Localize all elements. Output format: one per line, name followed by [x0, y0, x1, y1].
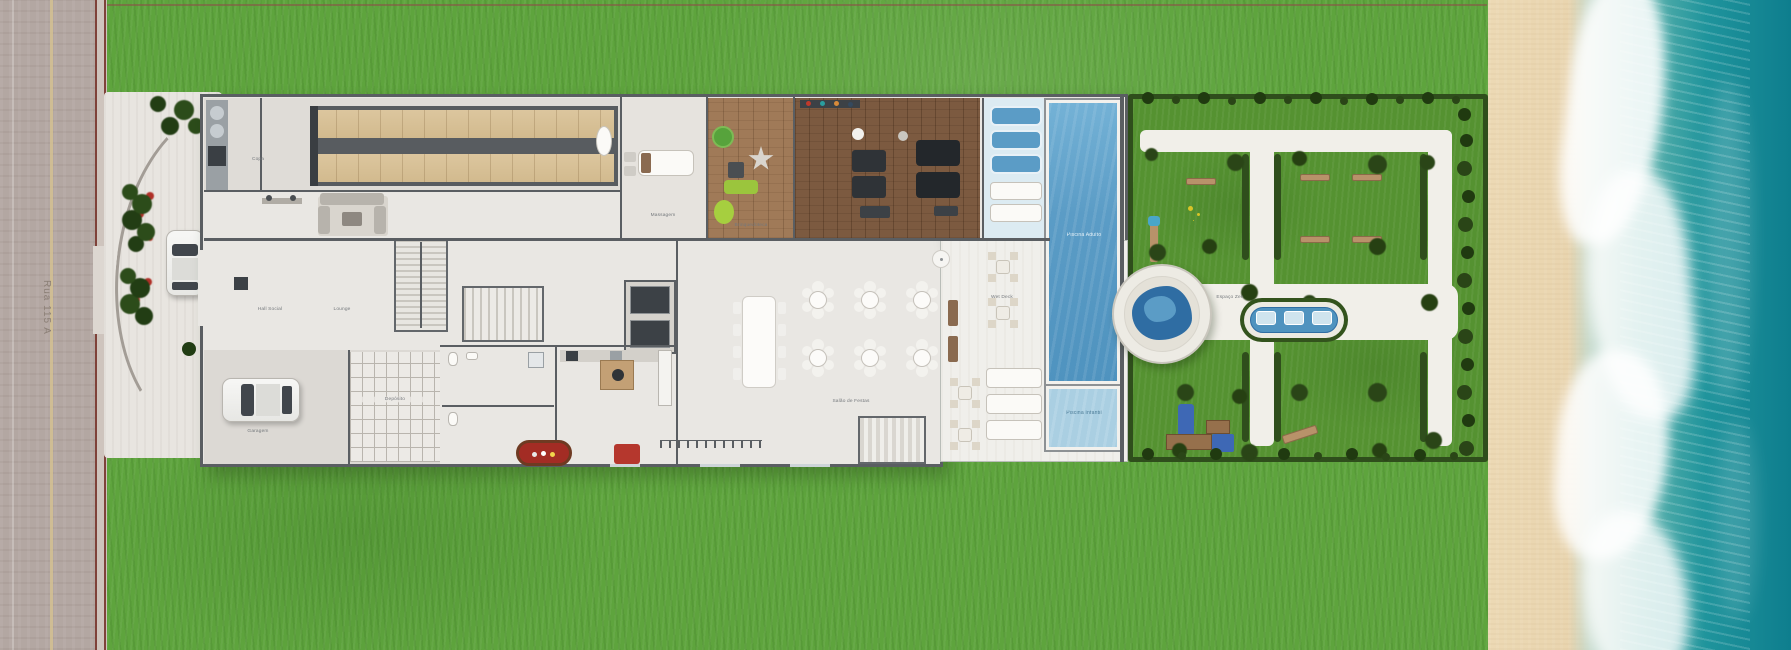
exercise-ball: [852, 128, 864, 140]
wall-bowling-south: [204, 190, 620, 192]
hedgerow: [1242, 352, 1249, 442]
tree-row-east: [1458, 108, 1471, 121]
tree-row-north: [1142, 92, 1154, 104]
parasol: [932, 250, 950, 268]
lamp-icon: [290, 195, 296, 201]
kids-pool-water: [1049, 389, 1117, 447]
wall-service: [260, 98, 262, 192]
parasol-pole: [940, 258, 943, 261]
flower-bush-lower: [120, 268, 136, 284]
toilet-icon: [448, 412, 458, 426]
console-table: [262, 198, 302, 204]
garden-trees: [1145, 148, 1158, 161]
hedgerow: [1274, 154, 1281, 260]
zen-pond-highlight: [1144, 296, 1176, 322]
bar-table: [948, 300, 958, 326]
sun-lounger: [990, 182, 1042, 200]
copa-label: Copa: [234, 157, 282, 163]
workout-mat: [852, 150, 886, 172]
elevator-car: [630, 320, 670, 348]
garden-bench: [1300, 236, 1330, 243]
sun-lounger: [986, 420, 1042, 440]
spa-lounger: [990, 154, 1042, 174]
kids-pouf: [714, 200, 734, 224]
window-slit: [700, 464, 740, 467]
basin-icon: [466, 352, 478, 360]
water-lounger: [1284, 311, 1304, 325]
sink-icon: [210, 106, 224, 120]
treadmill: [916, 172, 960, 198]
zen-pond: [1132, 286, 1192, 340]
road-edge-line: [12, 0, 14, 650]
storage-label: Depósito: [361, 397, 430, 403]
sun-lounger: [986, 394, 1042, 414]
wall-kitchen-north: [440, 345, 676, 347]
workout-mat: [852, 176, 886, 198]
pillar: [234, 277, 248, 290]
massage-bed: [638, 150, 694, 176]
stairwell-east: [858, 416, 926, 464]
tree-row-south: [1142, 448, 1154, 460]
deep-water-wisp: [1716, 420, 1756, 620]
deep-water-wisp: [1706, 80, 1750, 400]
flower-dots: [1188, 206, 1193, 211]
car-windshield: [172, 244, 198, 256]
pinsetter-machine: [310, 106, 318, 186]
bowling-lane: [314, 110, 614, 138]
deck-seating-group: [958, 386, 972, 400]
hedgerow: [1420, 154, 1427, 260]
side-chair: [624, 152, 636, 162]
stairwell-center: [462, 286, 544, 342]
deck-seating-group: [996, 260, 1010, 274]
wall-top-band-south: [204, 238, 1050, 241]
playground-slide: [1178, 404, 1194, 436]
garden-bench: [1300, 174, 1330, 181]
car-windshield: [241, 384, 254, 416]
reflect-pool: [1240, 298, 1348, 342]
water-lounger: [1312, 311, 1332, 325]
kids-pool-rim: Piscina Infantil: [1044, 384, 1122, 452]
storage-lockers: [350, 352, 440, 462]
lot-boundary-line: [107, 4, 1487, 6]
wet-deck-label: Wet Deck: [988, 295, 1017, 301]
water-lounger: [1256, 311, 1276, 325]
round-table: [913, 291, 931, 309]
car-rear-window: [282, 386, 292, 414]
cooktop-icon: [566, 351, 578, 361]
window-slit: [790, 464, 830, 467]
small-bush: [182, 342, 196, 356]
red-rug: [614, 444, 640, 464]
sofa: [374, 206, 386, 234]
zen-label: Espaço Zen: [1216, 295, 1245, 301]
kitchen-island: [600, 360, 634, 390]
exercise-ball: [898, 131, 908, 141]
fridge: [658, 350, 672, 406]
appliance-icon: [208, 146, 226, 166]
elevator-car: [630, 286, 670, 314]
kids-table: [728, 162, 744, 178]
garage-label: Garagem: [226, 429, 290, 435]
equipment-dots: [806, 101, 811, 106]
kids-room-label: Brinquedoteca: [715, 223, 787, 229]
spa-lounger: [990, 130, 1042, 150]
toilet-icon: [448, 352, 458, 366]
coffee-table: [342, 212, 362, 226]
playground-platform: [1166, 434, 1212, 450]
bowling-lane-block: [310, 106, 618, 186]
stairwell-west: [394, 238, 448, 332]
weight-bench: [934, 206, 958, 216]
garden-bench: [1352, 174, 1382, 181]
elevator-shaft: [624, 280, 676, 354]
sofa: [320, 193, 384, 205]
billiard-table: [516, 440, 572, 466]
adult-pool-label: Piscina Adulto: [1065, 233, 1102, 239]
hedgerow: [1242, 154, 1249, 260]
round-table: [861, 291, 879, 309]
ball-pit: [712, 126, 734, 148]
deck-seating-group: [958, 428, 972, 442]
banquet-chair: [733, 302, 741, 314]
bowling-seating: [596, 126, 612, 156]
massage-label: Massagem: [629, 213, 698, 219]
star-rug: [748, 146, 774, 172]
billiard-balls: [541, 451, 546, 456]
spa-zone: [982, 98, 1046, 241]
wall-pool-east: [1120, 94, 1124, 462]
hall-label: Hall Social: [246, 307, 294, 313]
adult-pool-water: [1049, 103, 1117, 381]
shower-icon: [528, 352, 544, 368]
deck-seating-group: [996, 306, 1010, 320]
window-slit: [610, 464, 640, 467]
round-table: [809, 349, 827, 367]
gym-floor: [795, 98, 980, 238]
wall-wc: [442, 405, 554, 407]
bowling-lane: [314, 154, 614, 182]
hedgerow: [1420, 352, 1427, 442]
sun-lounger: [990, 204, 1042, 222]
hedgerow: [1274, 352, 1281, 442]
kids-sofa: [724, 180, 758, 194]
zen-plaza: [1112, 264, 1212, 364]
shower-head: [1148, 216, 1160, 226]
garden-bench: [1352, 236, 1382, 243]
sink-icon: [210, 124, 224, 138]
lamp-icon: [266, 195, 272, 201]
parked-car: [222, 378, 300, 422]
pillow: [641, 153, 651, 173]
balustrade: [660, 440, 762, 448]
garden-bench: [1186, 178, 1216, 185]
playground-tower: [1212, 434, 1234, 452]
service-counter: [206, 100, 228, 190]
outdoor-shower: [1150, 222, 1158, 262]
wall-party-west: [676, 240, 678, 464]
street-label: Rua 115 A: [34, 252, 50, 362]
entrance-door-gap: [198, 250, 205, 326]
flower-bush-upper: [122, 184, 138, 200]
banquet-table: [742, 296, 776, 388]
wok-icon: [612, 369, 624, 381]
kids-pool-label: Piscina Infantil: [1064, 411, 1105, 417]
side-chair: [624, 166, 636, 176]
car-roof: [172, 258, 198, 280]
car-rear-window: [172, 282, 198, 290]
adult-pool-rim: Piscina Adulto: [1044, 98, 1122, 386]
round-table: [809, 291, 827, 309]
lounge-label: Lounge: [318, 307, 366, 313]
weight-bench: [860, 206, 890, 218]
spa-lounger: [990, 106, 1042, 126]
round-table: [913, 349, 931, 367]
bar-table: [948, 336, 958, 362]
kids-room-floor: [708, 98, 793, 238]
sun-lounger: [986, 368, 1042, 388]
party-label: Salão de Festas: [815, 399, 887, 405]
treadmill: [916, 140, 960, 166]
garden-path-top: [1140, 130, 1452, 152]
site-plan-scene: Rua 115 A Copa: [0, 0, 1791, 650]
round-table: [861, 349, 879, 367]
entrance-trees: [150, 96, 166, 112]
playground-platform: [1206, 420, 1230, 434]
car-roof: [256, 384, 280, 416]
sofa: [318, 206, 330, 234]
stair-rail: [420, 242, 422, 328]
